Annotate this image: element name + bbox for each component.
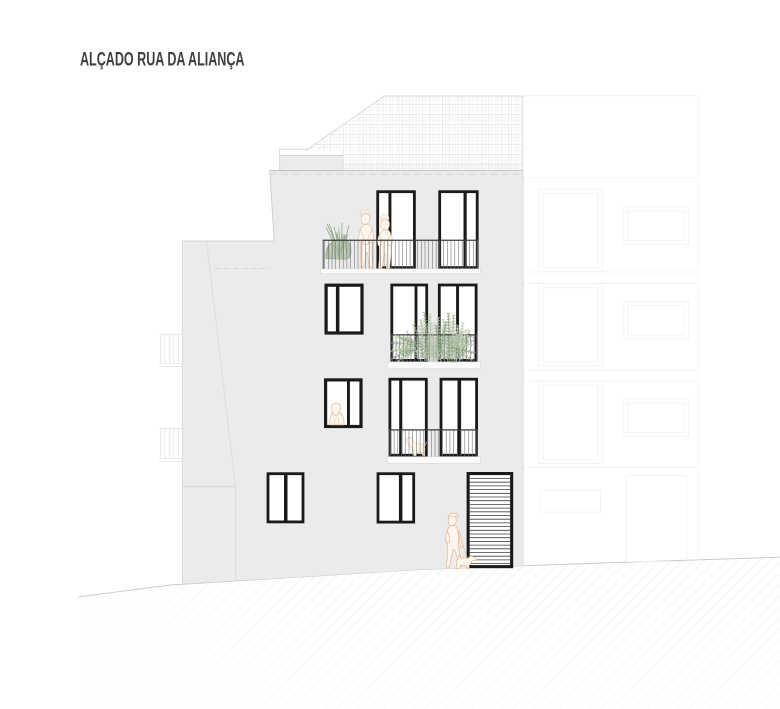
- svg-text:ALÇADO RUA DA ALIANÇA: ALÇADO RUA DA ALIANÇA: [80, 49, 245, 71]
